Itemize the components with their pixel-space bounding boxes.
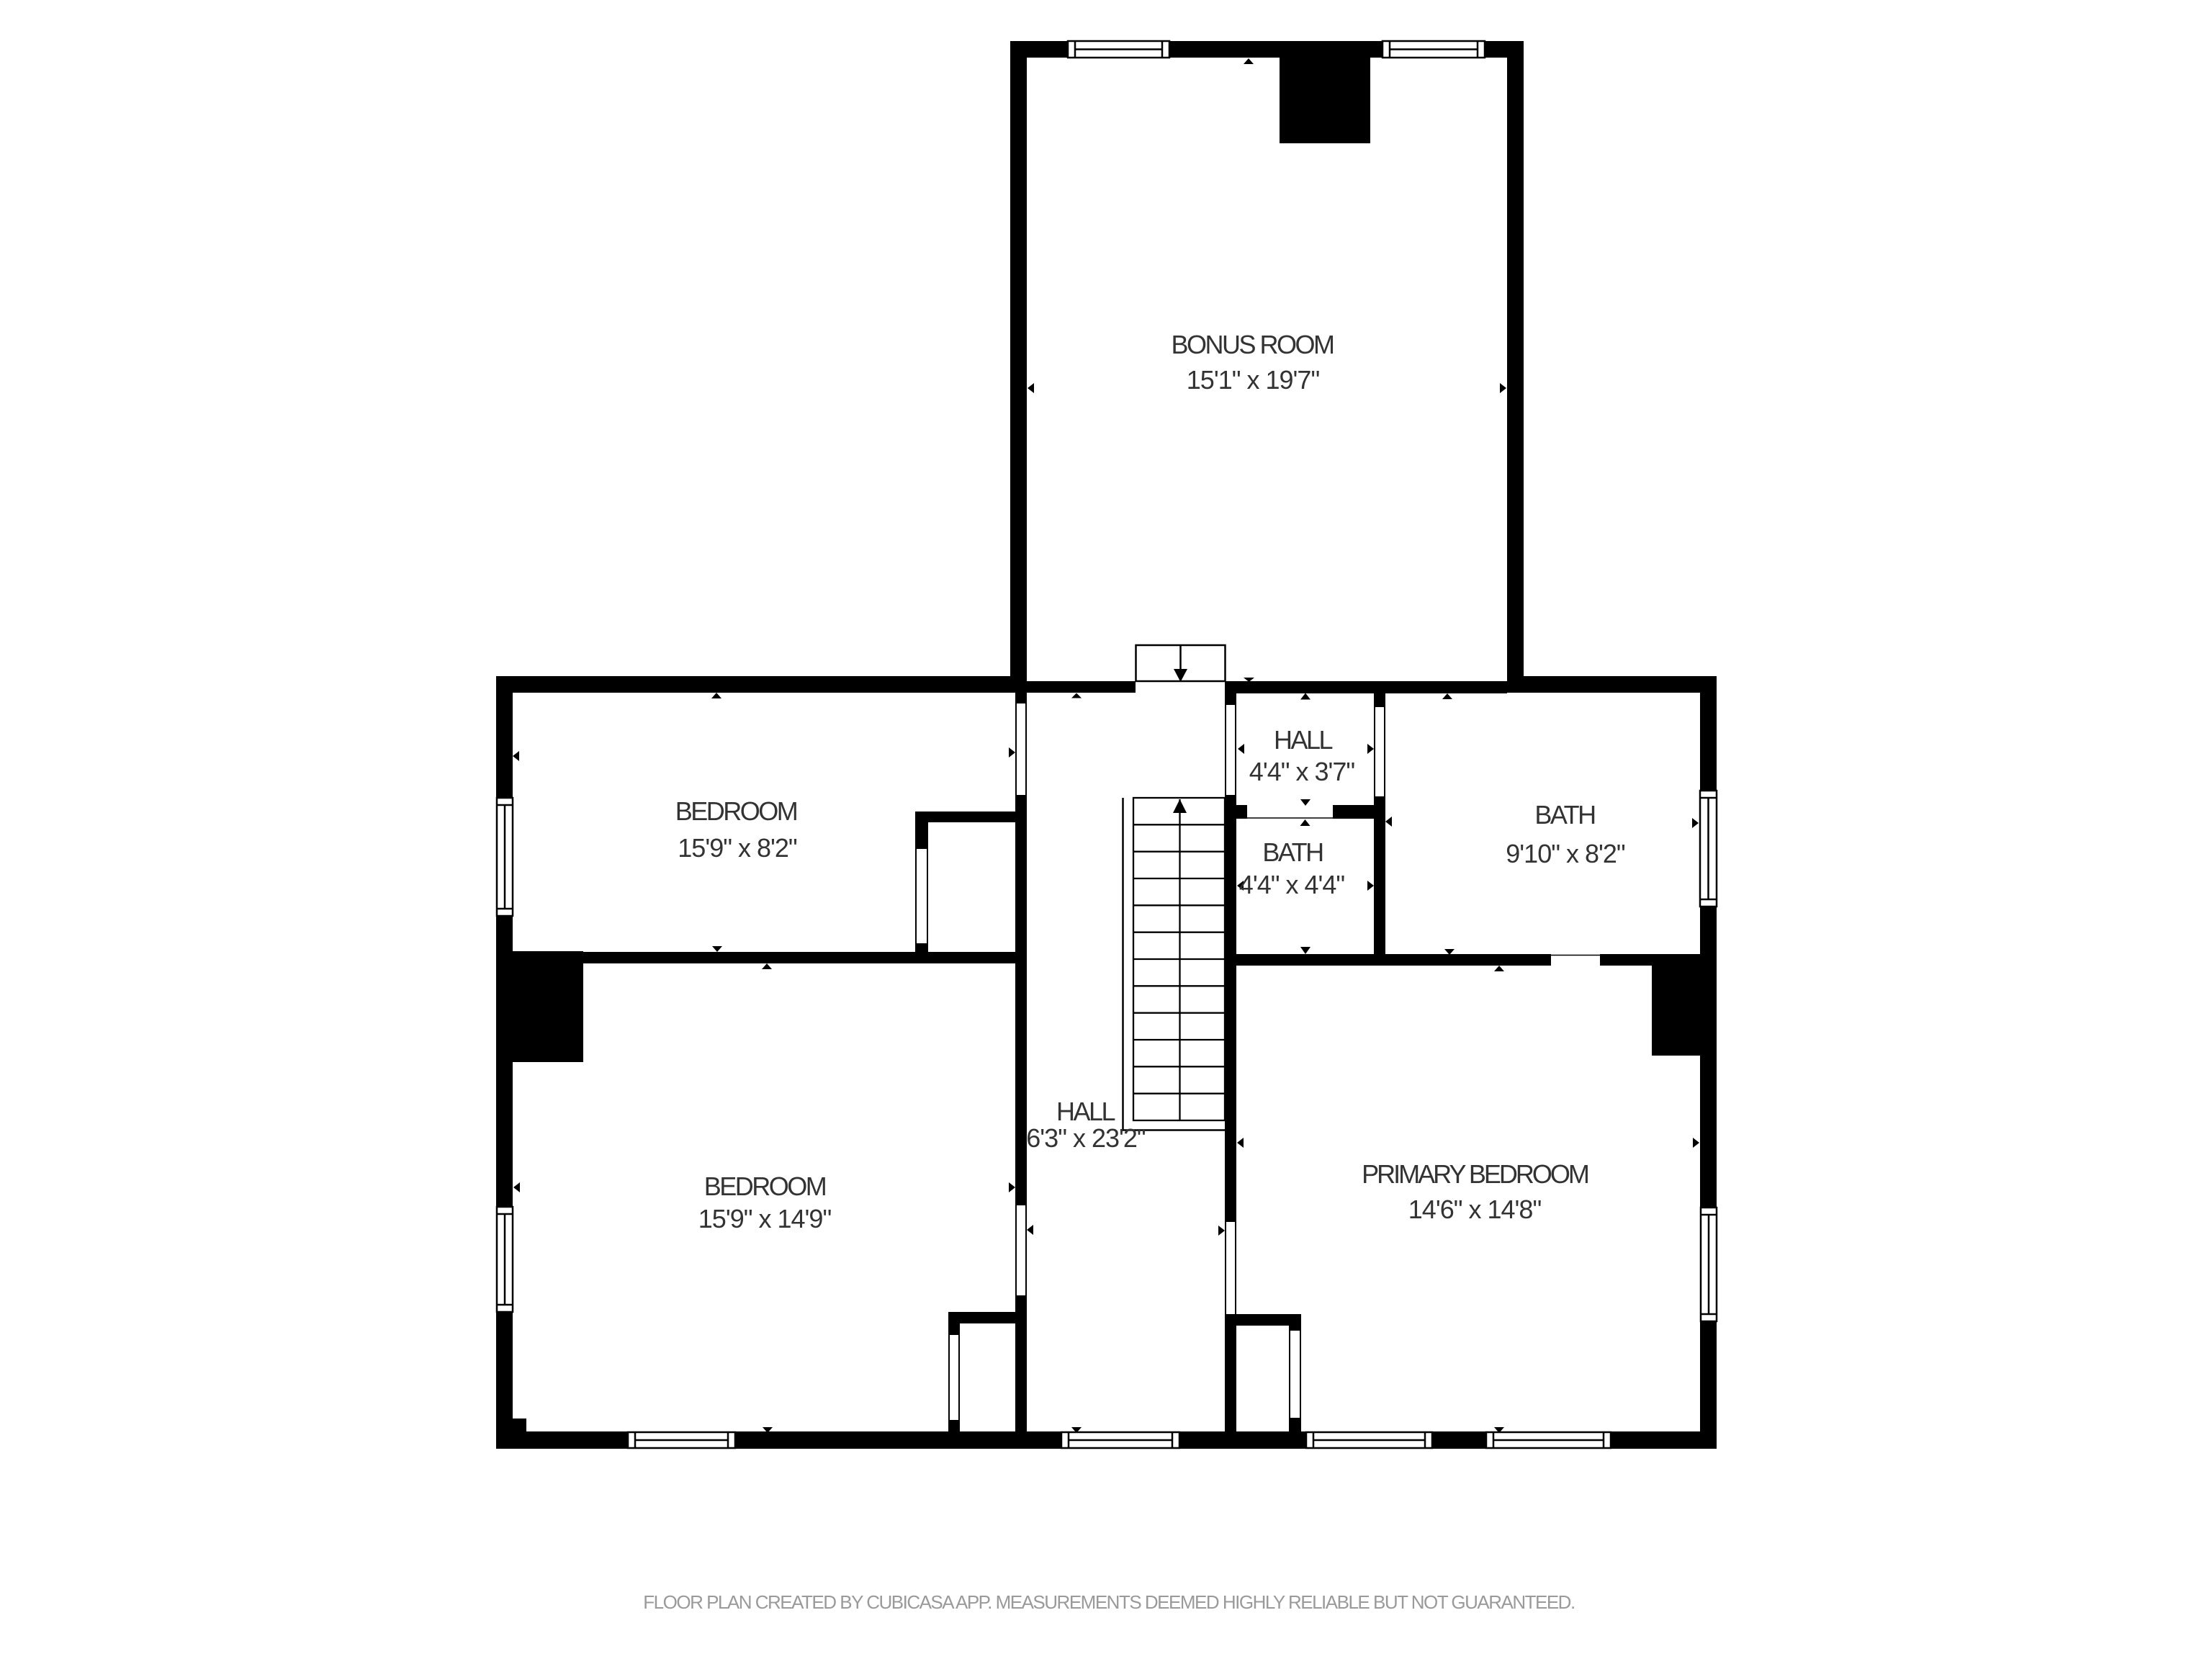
svg-text:FLOOR PLAN CREATED BY CUBICASA: FLOOR PLAN CREATED BY CUBICASA APP. MEAS… [643, 1591, 1574, 1613]
svg-text:PRIMARY BEDROOM: PRIMARY BEDROOM [1362, 1159, 1588, 1189]
svg-text:6'3" x 23'2": 6'3" x 23'2" [1026, 1123, 1146, 1153]
svg-text:15'1" x 19'7": 15'1" x 19'7" [1187, 365, 1320, 395]
svg-text:4'4" x 4'4": 4'4" x 4'4" [1239, 870, 1345, 899]
svg-text:15'9" x 14'9": 15'9" x 14'9" [698, 1204, 832, 1233]
svg-text:BEDROOM: BEDROOM [704, 1172, 826, 1201]
svg-text:BEDROOM: BEDROOM [675, 796, 797, 826]
svg-text:BATH: BATH [1262, 837, 1323, 867]
svg-text:15'9" x 8'2": 15'9" x 8'2" [678, 833, 797, 863]
svg-text:HALL: HALL [1056, 1097, 1115, 1126]
svg-text:4'4" x 3'7": 4'4" x 3'7" [1249, 757, 1355, 786]
svg-text:BATH: BATH [1534, 800, 1595, 829]
svg-text:9'10" x 8'2": 9'10" x 8'2" [1506, 839, 1625, 868]
svg-text:HALL: HALL [1274, 725, 1333, 755]
svg-text:BONUS ROOM: BONUS ROOM [1171, 330, 1334, 359]
svg-text:14'6" x 14'8": 14'6" x 14'8" [1408, 1195, 1542, 1224]
